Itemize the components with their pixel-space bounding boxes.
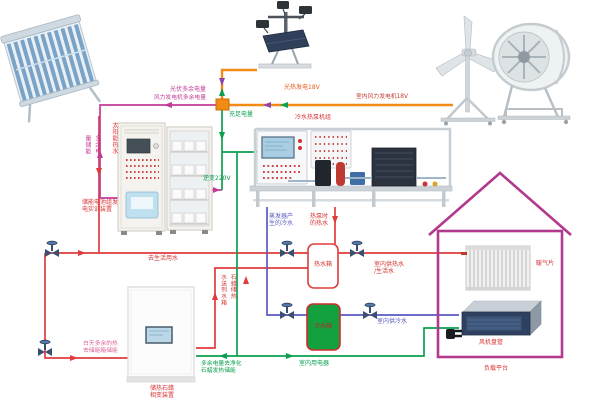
arrow-down-supply [219, 132, 225, 140]
pv-excess-label: 光伏多余电量 [150, 87, 206, 94]
battery-device-label: 储能电池组发 电实训装置 [82, 200, 118, 214]
cold-water-pipes [267, 207, 459, 315]
to-domestic-label: 去生活用水 [148, 256, 178, 263]
paraffin-to-tank-label: 石蜡储热 水送到水箱 [217, 274, 236, 306]
arrow-left-wind-purple [263, 102, 271, 108]
control-cabinet-image [118, 123, 165, 235]
arrow-left-wind-green [280, 102, 288, 108]
wind-generation-label: 室内风力发电机18V [356, 94, 408, 101]
pv-tracker-image [256, 1, 312, 68]
duct-fan-image [493, 24, 570, 124]
load-platform-label: 负载平台 [484, 366, 508, 373]
charge-junction-box [216, 99, 229, 110]
arrow-right-domestic [78, 250, 86, 256]
wind-turbine-image [436, 16, 500, 126]
arrow-right-appliance [286, 353, 294, 359]
arrow-left-excess [164, 102, 172, 108]
arrow-up-heat [243, 276, 249, 284]
evaporator-cold-label: 蒸发器产 生的冷水 [269, 214, 293, 228]
excess-storage-label: 多余电 量储能 [82, 135, 102, 155]
solar-collector-image [0, 14, 104, 123]
inverter-label: 逆变220V [203, 176, 231, 183]
fan-coil-label: 风机盘管 [479, 340, 503, 347]
valve-hot-tank-out [350, 241, 364, 257]
indoor-appliance-label: 室内用电器 [299, 361, 329, 368]
cold-tank-label: 冷水箱 [314, 324, 332, 331]
valve-cold-tank-out [363, 303, 377, 319]
arrow-left-paraffin-power [219, 353, 227, 359]
arrow-down-pv-purple [219, 78, 225, 86]
sufficient-power-label: 充足电量 [229, 112, 253, 119]
pv-generation-label: 光热发电18V [284, 85, 320, 92]
heat-pump-unit-image [250, 129, 452, 207]
arrow-down-solar [96, 168, 102, 176]
paraffin-storage-image [127, 287, 195, 382]
generation-lines [222, 70, 453, 105]
heat-pump-label: 冷水热泵机组 [295, 115, 331, 122]
arrow-down-tank [332, 216, 338, 224]
system-diagram: 太阳能热水 光伏多余电量 风力发电机多余电量 多余电 量储能 光热发电18V 室… [0, 0, 600, 419]
valve-hot-tank-in [280, 241, 294, 257]
solar-hot-water-label: 太阳能热水 [109, 122, 119, 155]
valve-cold-tank-in [280, 303, 294, 319]
arrow-up-pv-green [219, 88, 225, 96]
paraffin-device-label: 储热石蜡 相变装置 [146, 386, 178, 400]
radiator-label: 暖气片 [536, 261, 554, 268]
arrow-right-inverter [213, 187, 220, 193]
valve-domestic-left [45, 241, 59, 257]
indoor-hot-water-label: 室内供热水 /生活水 [374, 262, 404, 276]
fan-coil-image [446, 301, 541, 339]
radiator-image [461, 246, 530, 290]
wind-excess-label: 风力发电机多余电量 [150, 95, 206, 102]
hot-tank-label: 热水箱 [314, 262, 332, 269]
arrow-right-bottom [70, 355, 78, 361]
indoor-cold-water-label: 室内供冷水 [377, 319, 407, 326]
day-excess-heat-label: 白天多余的热 去储能箱储能 [83, 341, 118, 354]
heat-pump-hot-label: 热泵时 的热水 [310, 214, 328, 228]
excess-to-paraffin-label: 多余电量去净化 石蜡发热储能 [201, 361, 242, 374]
